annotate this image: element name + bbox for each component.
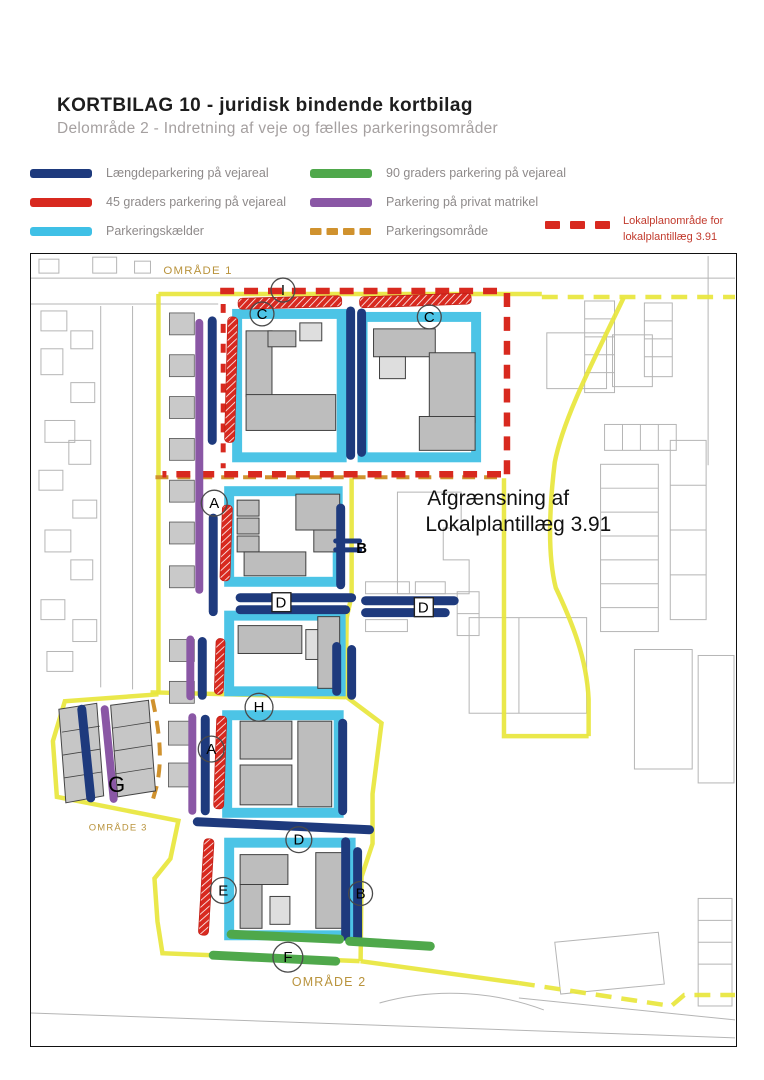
legend-label: Parkering på privat matrikel xyxy=(386,195,538,209)
buildings xyxy=(237,323,475,928)
annotation-line2: Lokalplantillæg 3.91 xyxy=(425,513,611,536)
svg-text:D: D xyxy=(276,595,287,612)
svg-text:D: D xyxy=(418,600,429,617)
perpendicular-parking-bars xyxy=(213,934,430,961)
svg-text:A: A xyxy=(206,741,216,758)
lokalplan-line2: lokalplantillæg 3.91 xyxy=(623,231,717,243)
legend: Længdeparkering på vejareal 45 graders p… xyxy=(30,166,750,256)
svg-text:G: G xyxy=(108,772,125,797)
annotation-line1: Afgrænsning af xyxy=(427,487,569,510)
legend-swatch-solid xyxy=(30,227,92,236)
map-frame: I C C A B D D H A D E B F G OMRÅDE 1 OMR… xyxy=(30,253,737,1047)
svg-text:B: B xyxy=(356,540,367,557)
legend-label: Længdeparkering på vejareal xyxy=(106,166,269,180)
legend-item-lokalplanomraade: Lokalplanområde for lokalplantillæg 3.91 xyxy=(545,214,723,246)
legend-label: Parkeringsområde xyxy=(386,224,488,238)
legend-label: 90 graders parkering på vejareal xyxy=(386,166,566,180)
legend-swatch-dashed xyxy=(310,227,372,236)
label-omrade-1: OMRÅDE 1 xyxy=(163,264,232,277)
legend-swatch-solid xyxy=(310,198,372,207)
marker-G: G xyxy=(108,772,125,797)
lokalplan-line1: Lokalplanområde for xyxy=(623,215,723,227)
page: KORTBILAG 10 - juridisk bindende kortbil… xyxy=(0,0,764,1080)
svg-text:F: F xyxy=(283,949,292,966)
marker-D1: D xyxy=(272,593,291,612)
boundary-yellow xyxy=(53,294,735,1006)
legend-item-45-graders: 45 graders parkering på vejareal xyxy=(30,195,286,209)
marker-A1: A xyxy=(201,490,227,516)
legend-item-privat-matrikel: Parkering på privat matrikel xyxy=(310,195,538,209)
svg-text:A: A xyxy=(209,495,219,512)
legend-item-parkeringskaelder: Parkeringskælder xyxy=(30,224,204,238)
svg-text:C: C xyxy=(424,309,435,326)
legend-swatch-solid xyxy=(30,169,92,178)
svg-text:B: B xyxy=(356,885,366,902)
map-svg: I C C A B D D H A D E B F G OMRÅDE 1 OMR… xyxy=(31,254,735,1045)
marker-D2: D xyxy=(414,598,433,617)
legend-item-parkeringsomraade: Parkeringsområde xyxy=(310,224,488,238)
svg-text:C: C xyxy=(257,306,268,323)
legend-label: Parkeringskælder xyxy=(106,224,204,238)
svg-text:D: D xyxy=(293,832,304,849)
svg-text:I: I xyxy=(281,282,285,299)
legend-swatch-red-dashed xyxy=(545,220,611,230)
svg-text:E: E xyxy=(218,882,228,899)
marker-B1: B xyxy=(356,540,367,557)
legend-label: 45 graders parkering på vejareal xyxy=(106,195,286,209)
row-houses xyxy=(59,313,194,803)
label-omrade-3: OMRÅDE 3 xyxy=(89,823,148,834)
legend-label-lokalplan: Lokalplanområde for lokalplantillæg 3.91 xyxy=(623,214,723,246)
page-title: KORTBILAG 10 - juridisk bindende kortbil… xyxy=(57,95,473,117)
legend-item-laengdeparkering: Længdeparkering på vejareal xyxy=(30,166,269,180)
label-omrade-2: OMRÅDE 2 xyxy=(292,974,367,989)
svg-text:H: H xyxy=(254,699,265,716)
legend-swatch-solid xyxy=(310,169,372,178)
legend-swatch-solid xyxy=(30,198,92,207)
page-subtitle: Delområde 2 - Indretning af veje og fæll… xyxy=(57,120,498,138)
legend-item-90-graders: 90 graders parkering på vejareal xyxy=(310,166,566,180)
